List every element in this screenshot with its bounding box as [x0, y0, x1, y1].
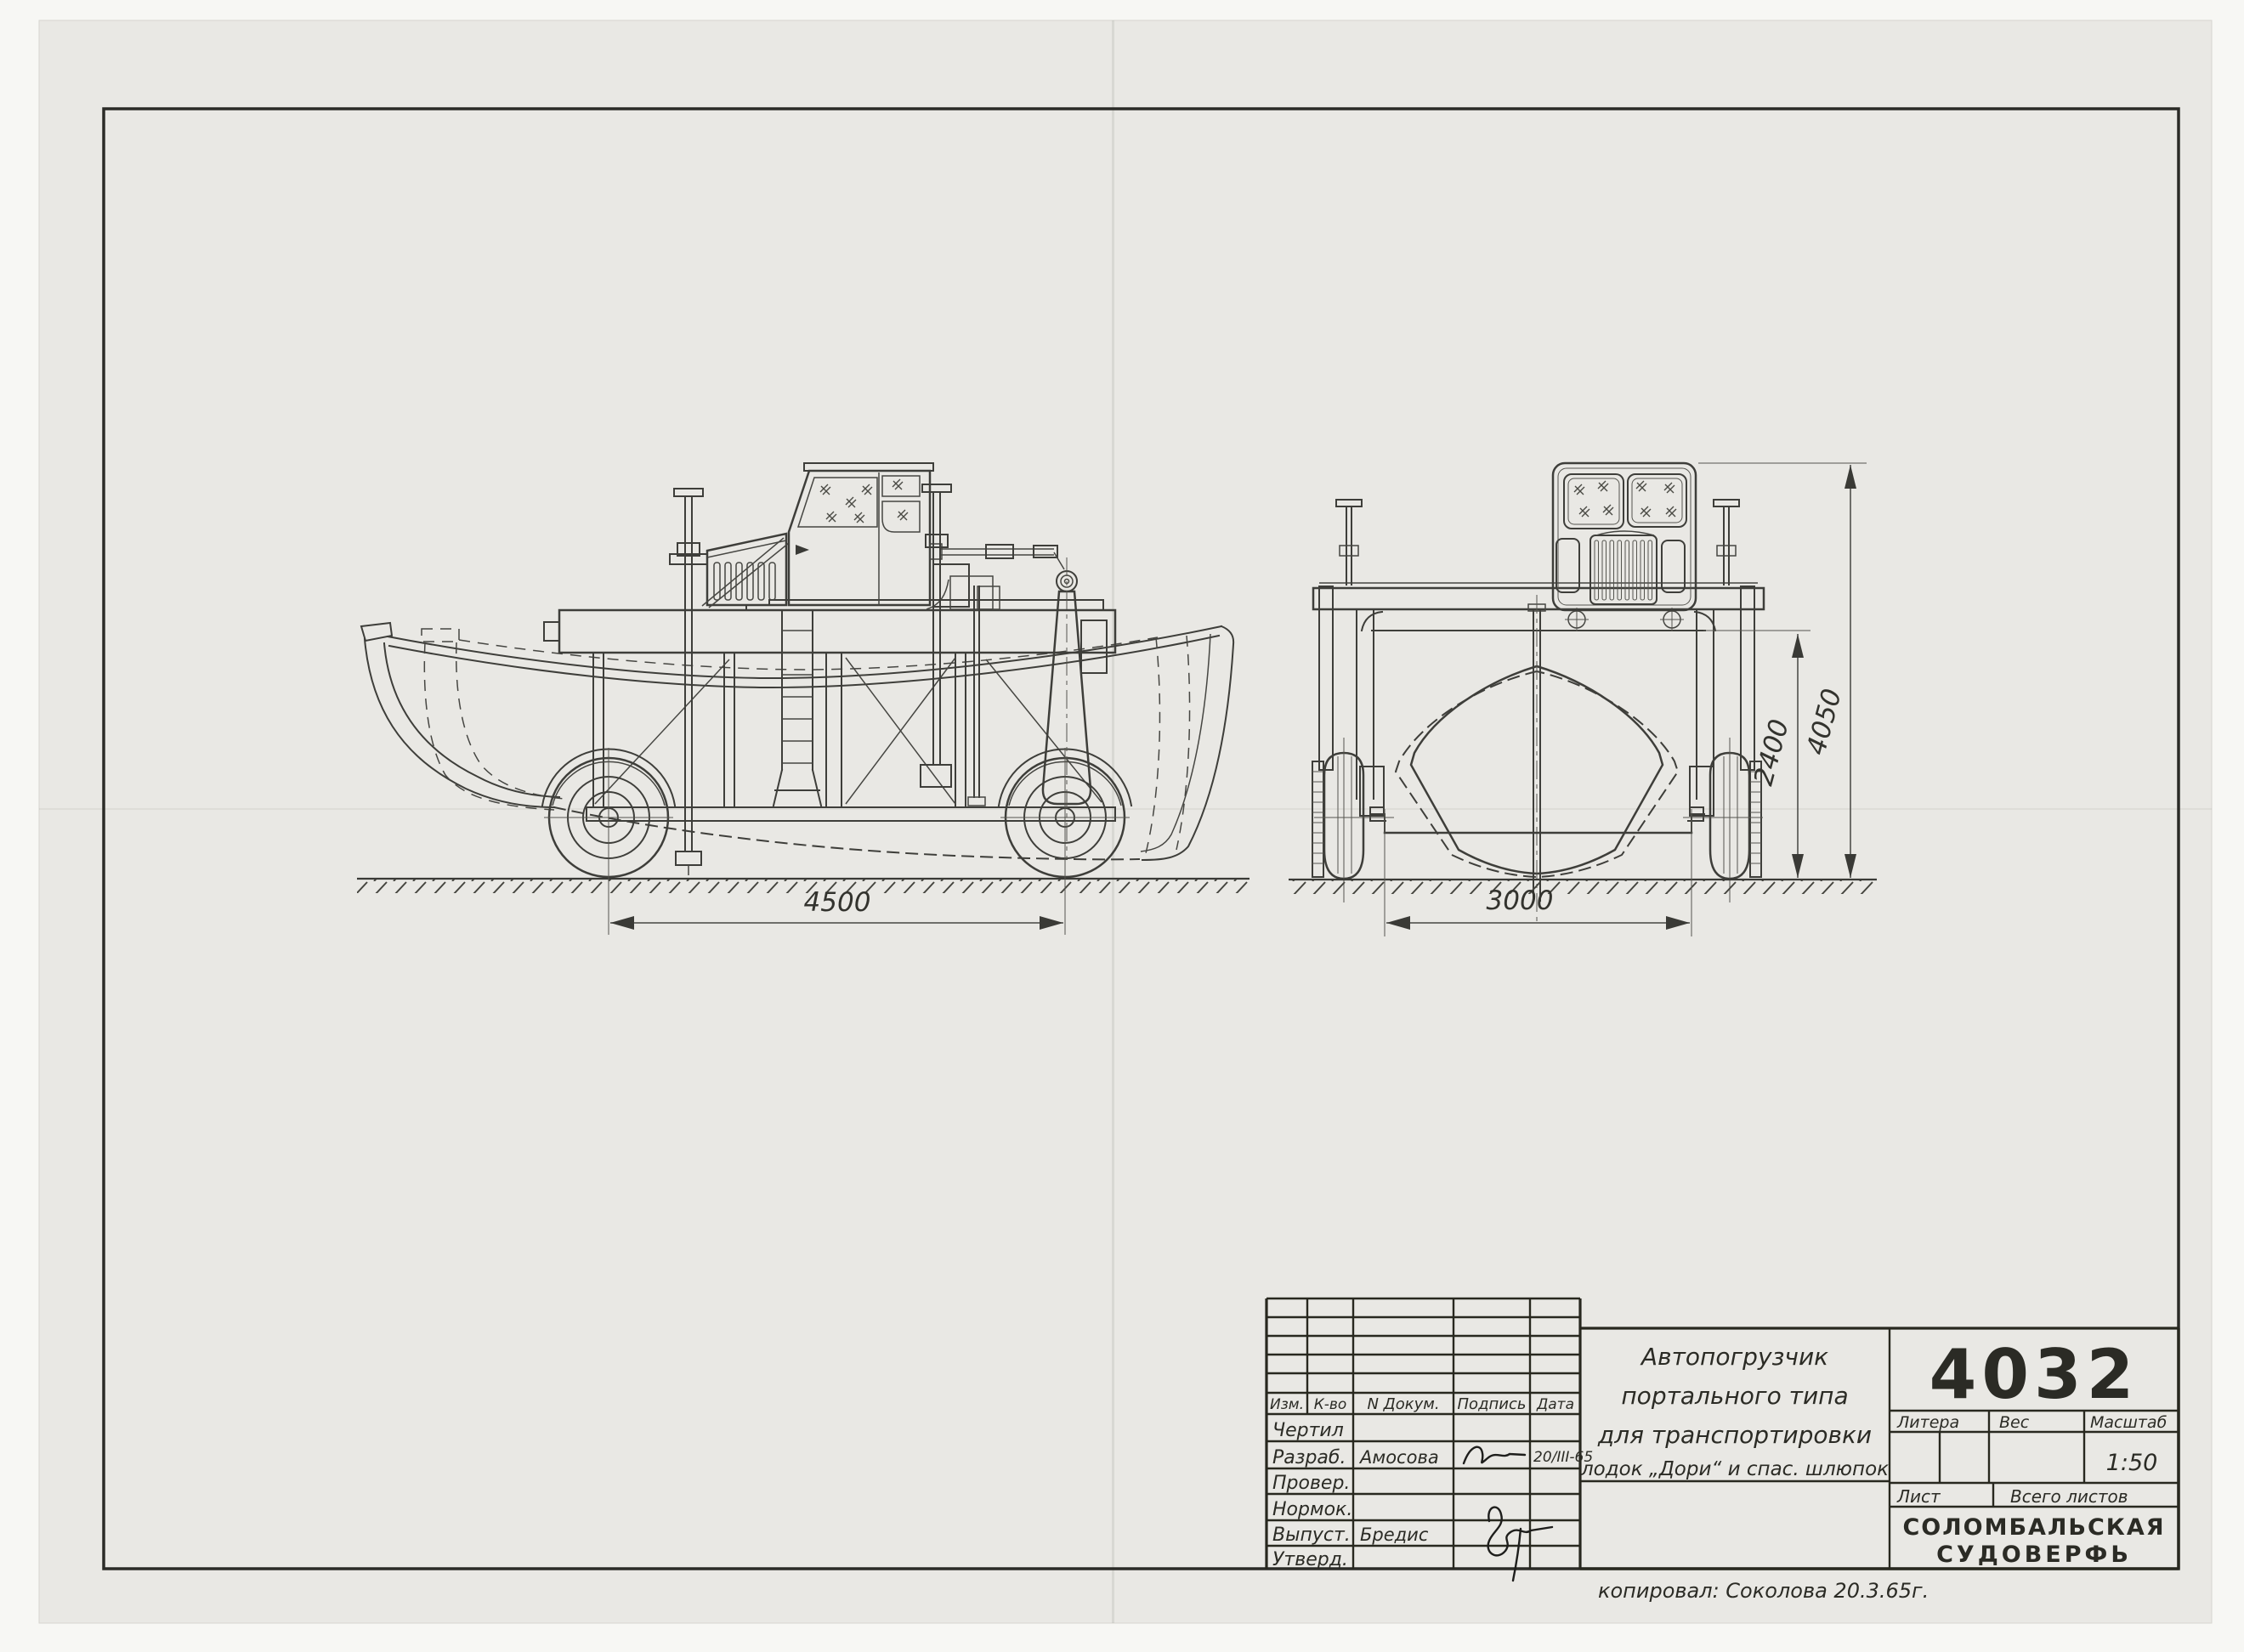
col-podpis: Подпись	[1458, 1395, 1527, 1413]
col-data: Дата	[1536, 1396, 1574, 1413]
row-prover: Провер.	[1272, 1473, 1350, 1494]
drawing-title-line1: Автопогрузчик	[1640, 1343, 1828, 1371]
row-vypust: Выпуст.	[1272, 1525, 1351, 1546]
scanned-drawing-sheet: 4500	[0, 0, 2244, 1652]
company-name-line1: СОЛОМБАЛЬСКАЯ	[1902, 1514, 2165, 1541]
label-vsego-listov: Всего листов	[2010, 1486, 2128, 1507]
label-masshtab: Масштаб	[2090, 1413, 2167, 1432]
row-normok: Нормок.	[1272, 1499, 1352, 1520]
col-dokum: N Докум.	[1367, 1395, 1439, 1413]
drawing-title-line3: для транспортировки	[1597, 1421, 1872, 1449]
row-razrab: Разраб.	[1272, 1447, 1346, 1468]
row-vypust-name: Бредис	[1360, 1525, 1429, 1545]
ground-line-front	[1289, 880, 1877, 894]
row-chertil: Чертил	[1272, 1420, 1344, 1441]
document-number: 4032	[1929, 1335, 2139, 1414]
horizontal-fold-line	[39, 808, 2212, 810]
row-razrab-name: Амосова	[1358, 1447, 1439, 1468]
row-utverd: Утверд.	[1272, 1549, 1348, 1570]
scale-value: 1:50	[2106, 1450, 2158, 1476]
col-izm: Изм.	[1270, 1396, 1304, 1413]
dimension-wheelbase-value: 4500	[804, 887, 871, 918]
copied-by-note: копировал: Соколова 20.3.65г.	[1598, 1579, 1929, 1603]
label-litera: Литера	[1896, 1413, 1959, 1432]
label-list: Лист	[1896, 1486, 1941, 1507]
dimension-track-value: 3000	[1487, 885, 1554, 916]
company-name-line2: СУДОВЕРФЬ	[1936, 1542, 2132, 1568]
drawing-title-line4: лодок „Дори“ и спас. шлюпок	[1580, 1458, 1889, 1480]
label-ves: Вес	[1999, 1413, 2030, 1432]
drawing-title-line2: портального типа	[1621, 1382, 1848, 1410]
col-kvo: К-во	[1314, 1396, 1347, 1413]
